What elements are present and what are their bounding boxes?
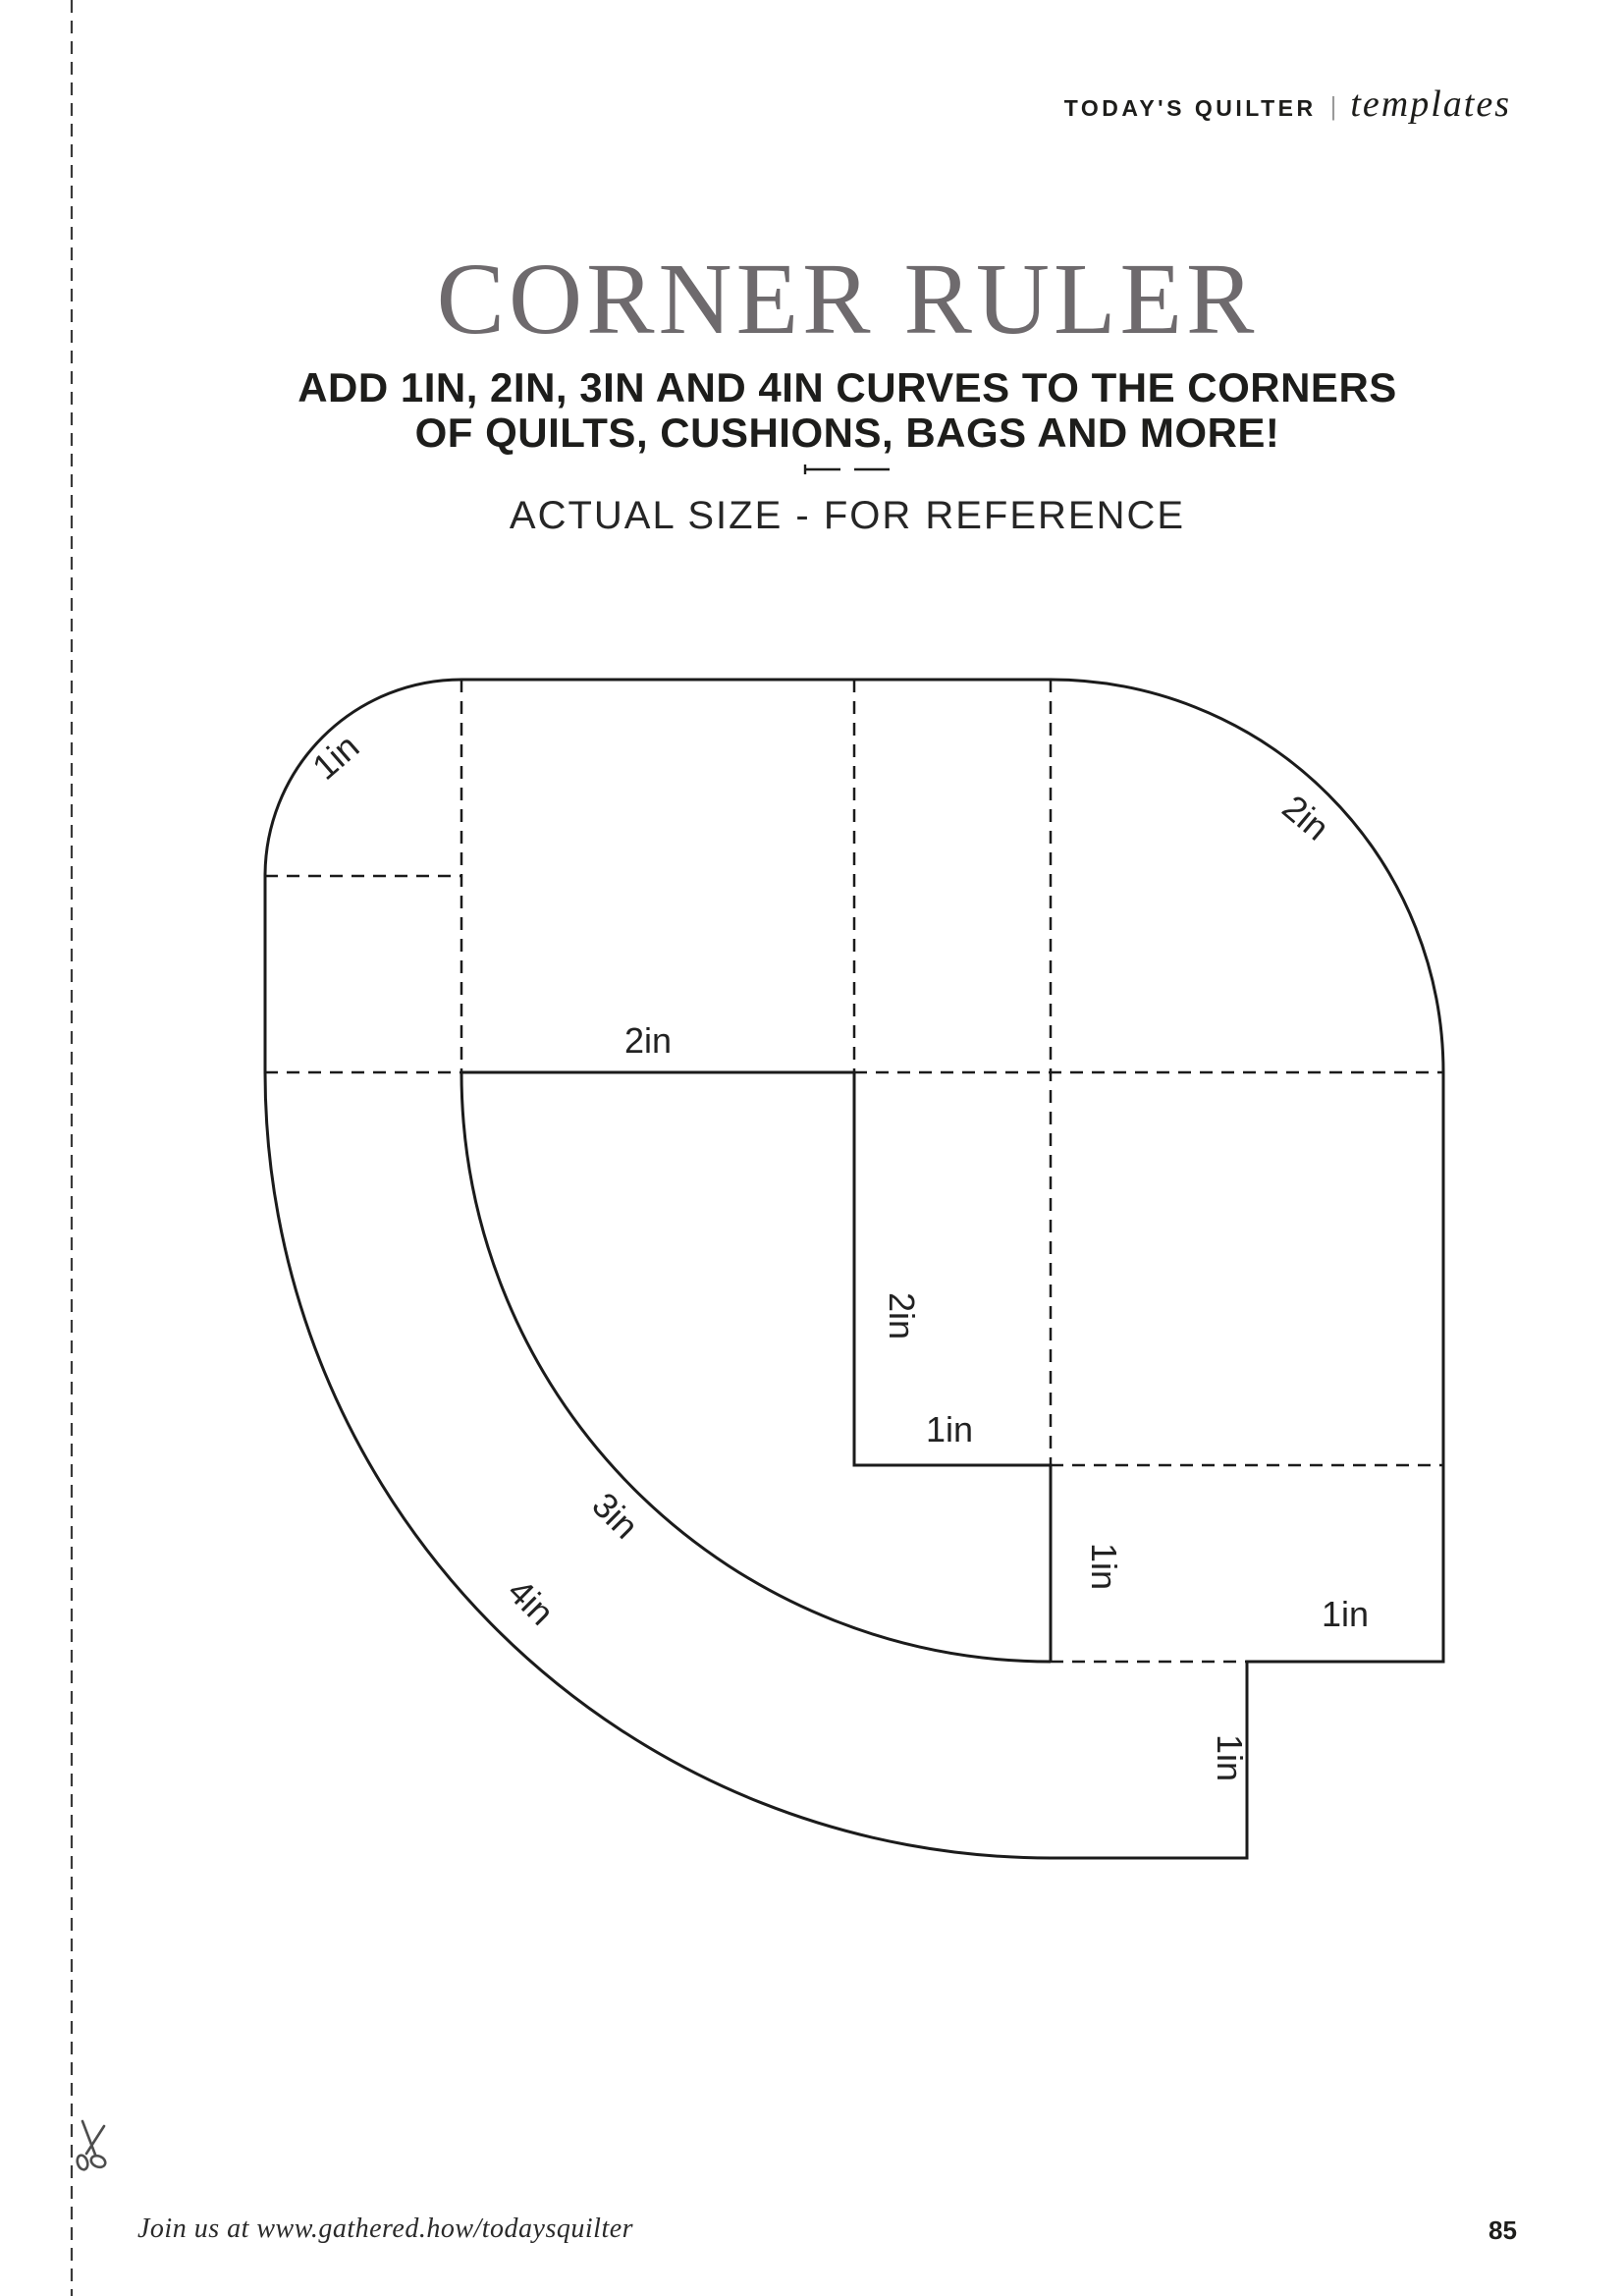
header-separator: | — [1330, 91, 1337, 122]
diagram-labels: 1in 2in 2in 2in 1in 1in 1in 1in 3in 4in — [304, 726, 1369, 1781]
subtitle-line-2: OF QUILTS, CUSHIONS, BAGS AND MORE! — [415, 410, 1280, 456]
label-step-1in-vertical: 1in — [1084, 1543, 1124, 1590]
actual-size-note: ACTUAL SIZE - FOR REFERENCE — [72, 494, 1623, 538]
inner-step-line — [461, 1072, 1051, 1662]
magazine-header: TODAY'S QUILTER | templates — [1064, 82, 1511, 126]
subtitle-line-1: ADD 1IN, 2IN, 3IN AND 4IN CURVES TO THE … — [298, 364, 1397, 410]
label-right-1in-vertical: 1in — [1210, 1734, 1250, 1781]
label-mid-2in-horizontal: 2in — [624, 1020, 672, 1061]
page-title: CORNER RULER — [72, 248, 1623, 351]
label-curve-2in: 2in — [1274, 787, 1336, 847]
page-number: 85 — [1488, 2215, 1517, 2246]
section-name: templates — [1350, 82, 1511, 126]
footer-join-text: Join us at www.gathered.how/todaysquilte… — [137, 2214, 633, 2245]
brand-name: TODAY'S QUILTER — [1064, 95, 1317, 122]
scissors-icon — [76, 2121, 107, 2171]
curve-3in-line — [461, 1072, 1051, 1662]
needle-ornament-icon — [803, 462, 892, 477]
label-right-1in-horizontal: 1in — [1322, 1594, 1369, 1634]
magazine-page: { "header": { "brand": "TODAY'S QUILTER"… — [0, 0, 1623, 2296]
label-curve-4in: 4in — [500, 1571, 562, 1633]
label-curve-1in: 1in — [304, 726, 366, 787]
needle-ornament — [72, 462, 1623, 479]
label-step-1in-horizontal: 1in — [926, 1409, 973, 1449]
page-subtitle: ADD 1IN, 2IN, 3IN AND 4IN CURVES TO THE … — [72, 365, 1623, 456]
corner-ruler-diagram: 1in 2in 2in 2in 1in 1in 1in 1in 3in 4in — [265, 680, 1443, 1858]
label-mid-2in-vertical: 2in — [882, 1292, 922, 1339]
